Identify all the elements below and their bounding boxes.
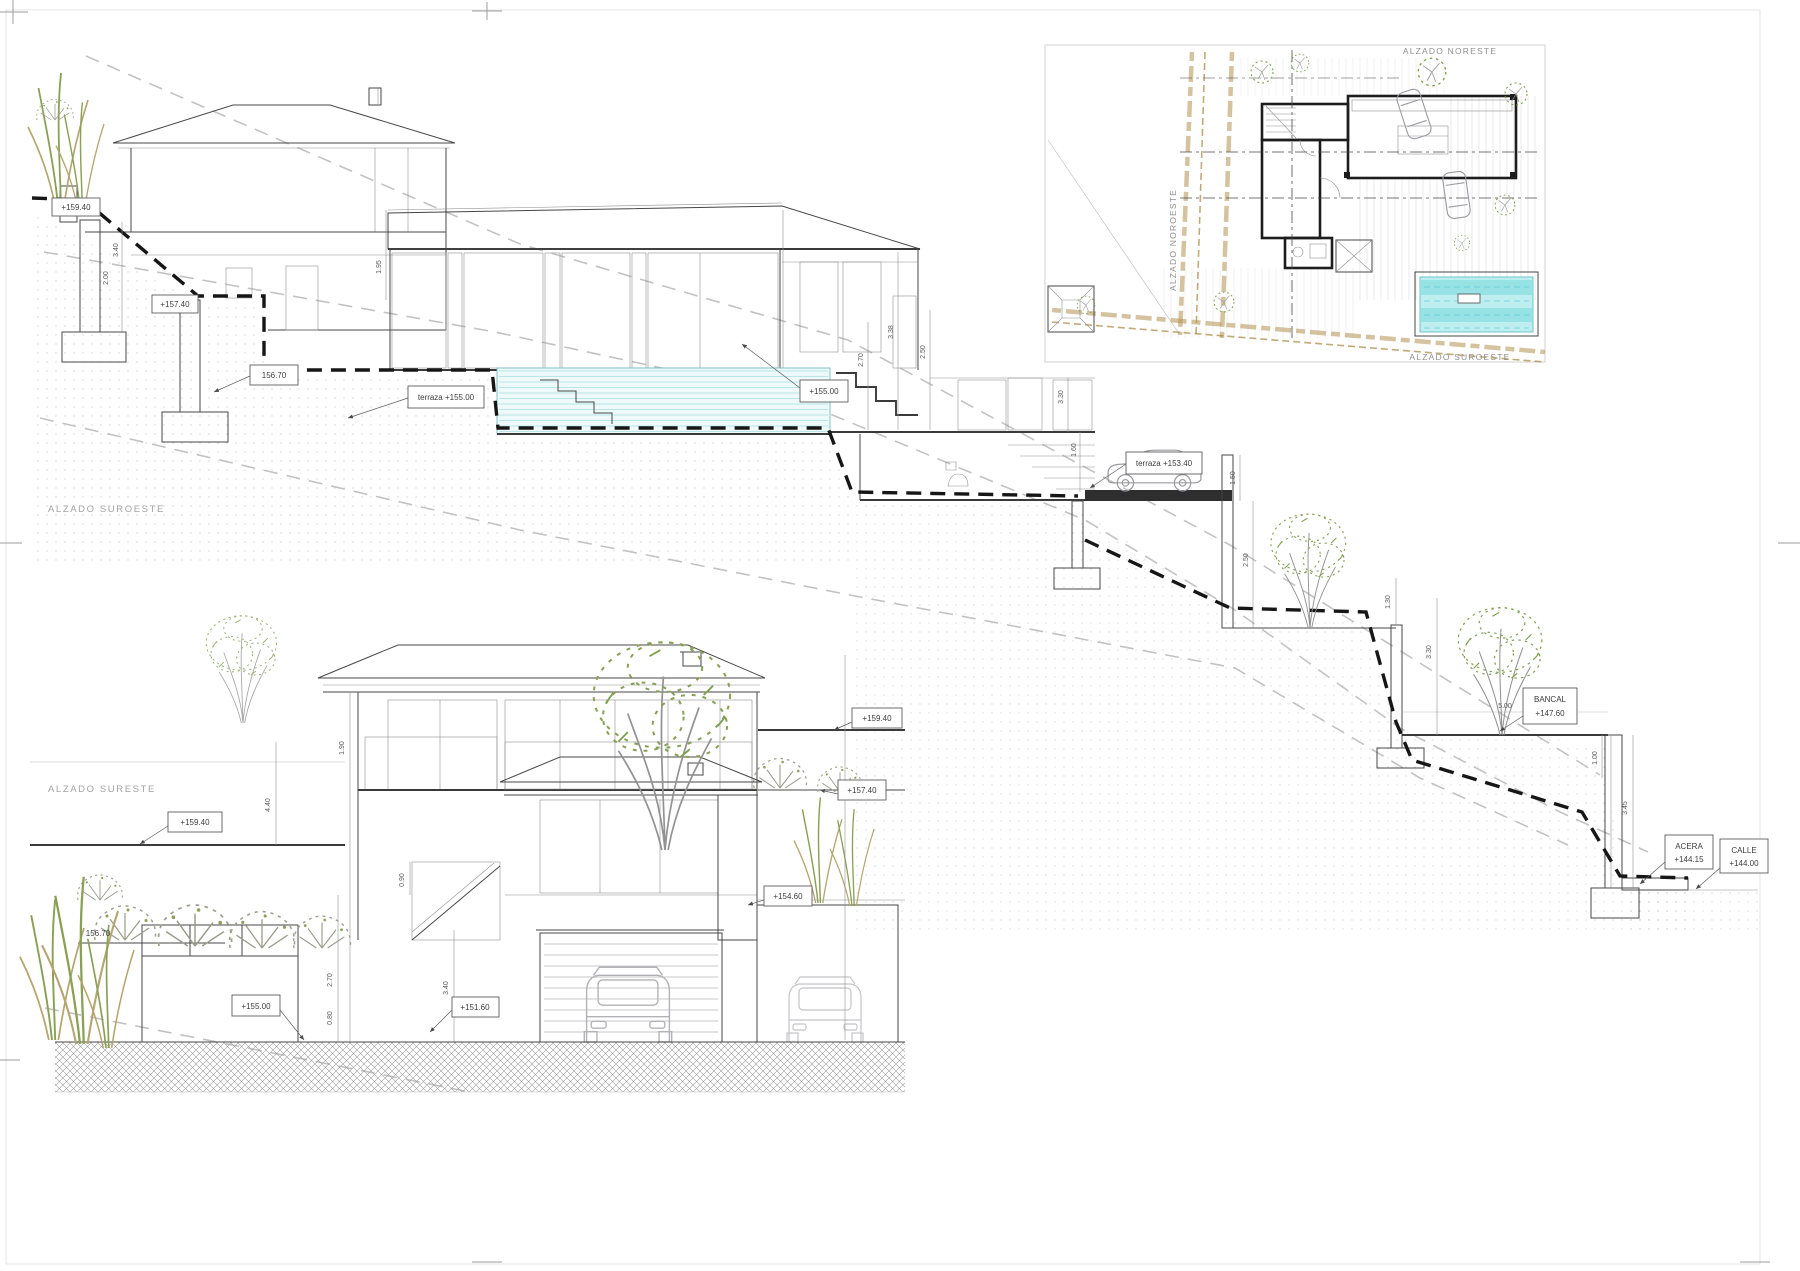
dim-label: 3.40 xyxy=(113,243,120,257)
dim-label: 2.00 xyxy=(103,271,110,285)
dim-label: 5.00 xyxy=(1498,703,1512,710)
level-label: +159.40 xyxy=(180,818,210,827)
dim-label: 1.00 xyxy=(1592,751,1599,765)
dim-label: 2.50 xyxy=(1243,553,1250,567)
interior-steps xyxy=(1008,445,1095,489)
level-label: 156.70 xyxy=(86,929,111,938)
lower-terrace-structure xyxy=(830,378,1095,500)
ground-texture xyxy=(1624,892,1760,936)
site-plan-view: ALZADO NORESTE ALZADO NOROESTE ALZADO SU… xyxy=(1045,45,1545,362)
pavement xyxy=(55,1042,905,1092)
deck-stripes xyxy=(1240,58,1445,96)
level-label: +154.60 xyxy=(773,892,803,901)
elevation-view-sureste: 4.40 1.90 0.90 2.70 0.80 3.40 +159.40 15… xyxy=(20,616,905,1092)
dim-label: 0.80 xyxy=(327,1011,334,1025)
deck-stripes xyxy=(1162,268,1358,338)
dim-label: 0.90 xyxy=(399,873,406,887)
section-title: ALZADO SUROESTE xyxy=(48,504,165,515)
dim-label: 3.45 xyxy=(1622,801,1629,815)
elevation-level-labels: +159.40 156.70 +155.00 +159.40 +157.40 +… xyxy=(86,708,902,1040)
dim-label: 3.30 xyxy=(1058,390,1065,404)
level-label: terraza +153.40 xyxy=(1136,459,1193,468)
toilet-fixture xyxy=(946,462,968,486)
plan-label-left: ALZADO NOROESTE xyxy=(1168,189,1178,291)
garage xyxy=(540,933,722,1042)
dim-label: 1.90 xyxy=(339,741,346,755)
dim-label: 2.50 xyxy=(920,345,927,359)
level-label: +159.40 xyxy=(61,203,91,212)
main-house-body xyxy=(388,210,783,370)
dim-label: 3.38 xyxy=(888,325,895,339)
calle-level: +144.00 xyxy=(1729,859,1759,868)
level-label: +155.00 xyxy=(241,1002,271,1011)
pergola-terrace xyxy=(782,249,918,370)
dim-label: 4.40 xyxy=(265,798,272,812)
dim-label: 3.30 xyxy=(1426,645,1433,659)
level-label: +157.40 xyxy=(847,786,877,795)
dim-label: 2.70 xyxy=(858,353,865,367)
level-label: terraza +155.00 xyxy=(418,393,475,402)
level-label: +155.00 xyxy=(809,387,839,396)
acera-level: +144.15 xyxy=(1674,855,1704,864)
elevation-dimensions: 4.40 1.90 0.90 2.70 0.80 3.40 xyxy=(265,655,845,1042)
dim-label: 2.70 xyxy=(327,973,334,987)
house-ground-floor xyxy=(358,795,757,940)
pool-plan xyxy=(1415,272,1538,336)
house-lower-roof xyxy=(500,757,762,795)
pool-section xyxy=(497,368,830,434)
dim-label: 1.95 xyxy=(376,260,383,274)
house-upper-floor xyxy=(358,692,757,795)
dim-label: 1.60 xyxy=(1071,443,1078,457)
plan-label-bottom: ALZADO SUROESTE xyxy=(1409,352,1510,362)
dim-label: 1.50 xyxy=(1230,471,1237,485)
level-label: +151.60 xyxy=(460,1003,490,1012)
bancal-label: BANCAL xyxy=(1534,695,1567,704)
architectural-drawing: +151.60 +159.40 +157.40 156.70 terraza +… xyxy=(0,0,1800,1271)
drawing-sheet: +151.60 +159.40 +157.40 156.70 terraza +… xyxy=(0,0,1800,1271)
level-label: +157.40 xyxy=(160,300,190,309)
bancal-level: +147.60 xyxy=(1535,709,1565,718)
acera-label: ACERA xyxy=(1675,842,1703,851)
level-label: +159.40 xyxy=(862,714,892,723)
house-main-roof xyxy=(318,645,765,692)
elevation-title: ALZADO SURESTE xyxy=(48,784,156,795)
calle-label: CALLE xyxy=(1731,846,1756,855)
dim-label: 1.30 xyxy=(1385,595,1392,609)
plan-label-top: ALZADO NORESTE xyxy=(1403,46,1497,56)
dim-label: 3.40 xyxy=(443,981,450,995)
main-house-roof xyxy=(388,203,920,249)
level-label: 156.70 xyxy=(262,371,287,380)
